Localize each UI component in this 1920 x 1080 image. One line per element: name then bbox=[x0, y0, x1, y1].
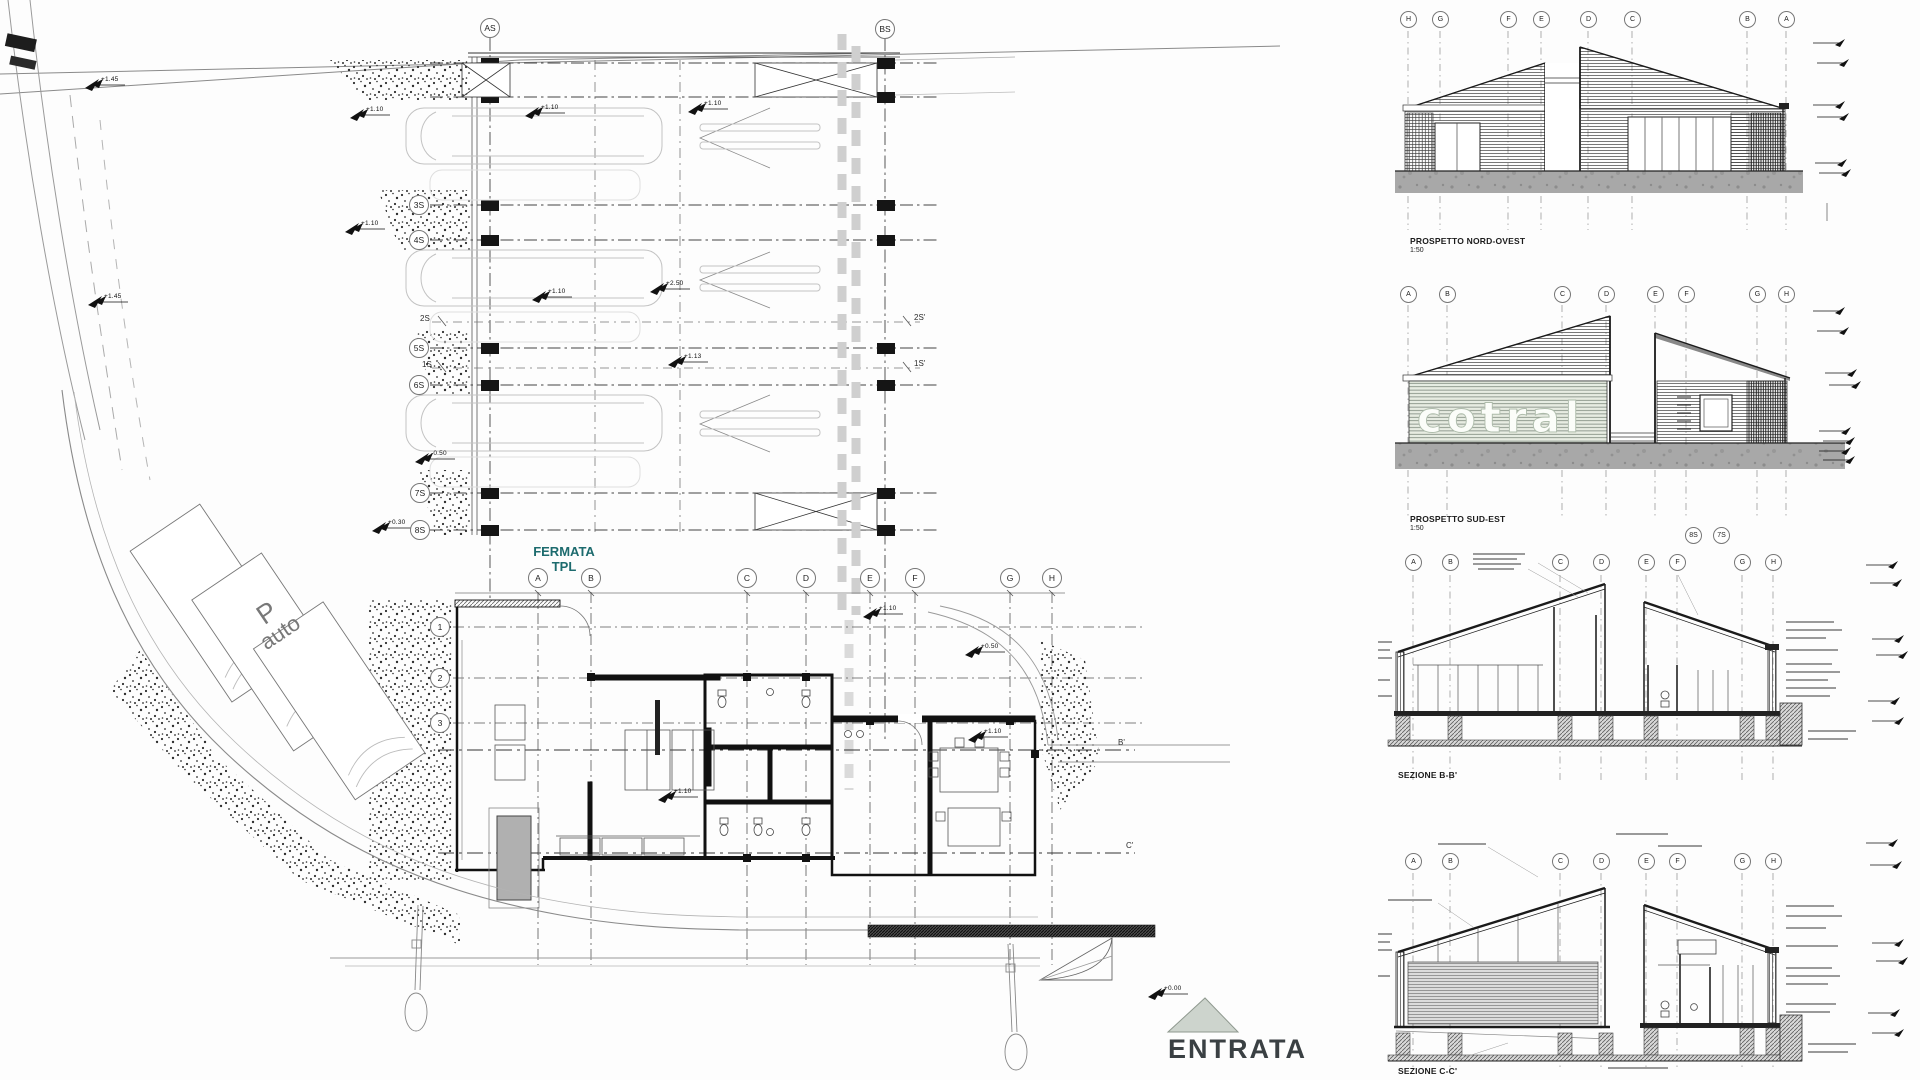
d2-title: PROSPETTO SUD-EST bbox=[1410, 514, 1505, 524]
d3-grid-h: H bbox=[1765, 554, 1782, 571]
spot-elevation: +1.10 bbox=[366, 106, 383, 113]
tick-c-prime: C' bbox=[1126, 841, 1133, 850]
plan-grid-h: H bbox=[1042, 568, 1062, 588]
d4-grid-c: C bbox=[1552, 853, 1569, 870]
tick-2s-prime: 2S' bbox=[914, 313, 925, 322]
grid-bubble-as: AS bbox=[480, 18, 500, 38]
elevation-middle-gap bbox=[1545, 63, 1580, 171]
elevation-right-building bbox=[1655, 333, 1790, 443]
tick-2s: 2S bbox=[420, 314, 430, 323]
elevation-left-block bbox=[1403, 63, 1547, 171]
spot-elevation-flags bbox=[85, 79, 1188, 1000]
spot-elevation: +1.45 bbox=[101, 76, 118, 83]
plan-grid-f: F bbox=[905, 568, 925, 588]
plan-grid-2: 2 bbox=[430, 668, 450, 688]
tick-1s: 1S bbox=[422, 360, 432, 369]
d1-grid-c: C bbox=[1624, 11, 1641, 28]
d4-grid-f: F bbox=[1669, 853, 1686, 870]
elevation-marks bbox=[1866, 561, 1908, 725]
d1-grid-h: H bbox=[1400, 11, 1417, 28]
d4-grid-a: A bbox=[1405, 853, 1422, 870]
d3-title: SEZIONE B-B' bbox=[1398, 770, 1457, 780]
d3-grid-b: B bbox=[1442, 554, 1459, 571]
entrance-label: ENTRATA bbox=[1168, 1034, 1307, 1065]
d2-grid-a: A bbox=[1400, 286, 1417, 303]
cotral-logo: cotral bbox=[1417, 393, 1584, 442]
fermata-line1: FERMATA bbox=[524, 544, 604, 559]
d2-grid-c: C bbox=[1554, 286, 1571, 303]
elevation-marks bbox=[1866, 839, 1908, 1037]
bus-outlines bbox=[406, 108, 820, 487]
d1-grid-g: G bbox=[1432, 11, 1449, 28]
d3-grid-f: F bbox=[1669, 554, 1686, 571]
grid-bubble-4s: 4S bbox=[409, 230, 429, 250]
d1-title: PROSPETTO NORD-OVEST bbox=[1410, 236, 1525, 246]
d3-grid-e: E bbox=[1638, 554, 1655, 571]
d2-grid-h: H bbox=[1778, 286, 1795, 303]
d4-grid-e: E bbox=[1638, 853, 1655, 870]
d4-title: SEZIONE C-C' bbox=[1398, 1066, 1457, 1076]
spot-elevation: +0.30 bbox=[388, 519, 405, 526]
d1-grid-b: B bbox=[1739, 11, 1756, 28]
spot-elevation: +0.00 bbox=[1164, 985, 1181, 992]
spot-elevation: +1.10 bbox=[548, 288, 565, 295]
spot-elevation: +1.45 bbox=[104, 293, 121, 300]
plan-grid-c: C bbox=[737, 568, 757, 588]
d2-scale: 1:50 bbox=[1410, 525, 1424, 532]
tick-1s-prime: 1S' bbox=[914, 359, 925, 368]
ground-bar bbox=[1395, 443, 1845, 469]
spot-elevation: +1.10 bbox=[704, 100, 721, 107]
fermata-line2: TPL bbox=[524, 559, 604, 574]
spot-elevation: +2.50 bbox=[666, 280, 683, 287]
spot-elevation: +1.10 bbox=[984, 728, 1001, 735]
d3-grid-c: C bbox=[1552, 554, 1569, 571]
d2-grid-b: B bbox=[1439, 286, 1456, 303]
d2-bubble-8s: 8S bbox=[1685, 527, 1702, 544]
fermata-tpl-label: FERMATA TPL bbox=[524, 544, 604, 574]
plan-grid-e: E bbox=[860, 568, 880, 588]
d4-grid-b: B bbox=[1442, 853, 1459, 870]
d2-bubble-7s: 7S bbox=[1713, 527, 1730, 544]
d1-grid-a: A bbox=[1778, 11, 1795, 28]
tick-b-prime: B' bbox=[1118, 738, 1125, 747]
grid-bubble-8s: 8S bbox=[410, 520, 430, 540]
spot-elevation: +0.50 bbox=[981, 643, 998, 650]
spot-elevation: +1.13 bbox=[684, 353, 701, 360]
d2-grid-e: E bbox=[1647, 286, 1664, 303]
ground-bar bbox=[1395, 171, 1803, 193]
spot-elevation: +1.10 bbox=[879, 605, 896, 612]
d1-scale: 1:50 bbox=[1410, 247, 1424, 254]
d2-grid-g: G bbox=[1749, 286, 1766, 303]
elevation-left-building: cotral bbox=[1403, 316, 1612, 457]
d4-grid-g: G bbox=[1734, 853, 1751, 870]
site-plan-drawing bbox=[0, 0, 1380, 1080]
d1-grid-e: E bbox=[1533, 11, 1550, 28]
grid-bubble-7s: 7S bbox=[410, 483, 430, 503]
plan-grid-1: 1 bbox=[430, 617, 450, 637]
section-structure bbox=[1388, 888, 1802, 1061]
d4-grid-d: D bbox=[1593, 853, 1610, 870]
spot-elevation: +1.10 bbox=[541, 104, 558, 111]
elevation-right-block bbox=[1580, 47, 1789, 171]
elevation-marks bbox=[1813, 39, 1851, 177]
d1-grid-d: D bbox=[1580, 11, 1597, 28]
spot-elevation: -0.50 bbox=[431, 450, 447, 457]
pedestrian-walkway bbox=[842, 34, 856, 790]
prospetto-nord-ovest-drawing bbox=[1395, 5, 1865, 257]
d2-grid-f: F bbox=[1678, 286, 1695, 303]
d1-grid-f: F bbox=[1500, 11, 1517, 28]
prospetto-sud-est-drawing: cotral bbox=[1395, 283, 1865, 545]
d3-grid-a: A bbox=[1405, 554, 1422, 571]
grid-bubble-5s: 5S bbox=[409, 338, 429, 358]
entrance-triangle bbox=[1168, 998, 1238, 1032]
drawing-sheet: cotral bbox=[0, 0, 1920, 1080]
grid-bubble-3s: 3S bbox=[409, 195, 429, 215]
d4-grid-h: H bbox=[1765, 853, 1782, 870]
elevation-marks bbox=[1813, 307, 1861, 464]
plan-grid-d: D bbox=[796, 568, 816, 588]
grid-bubble-bs: BS bbox=[875, 19, 895, 39]
sezione-bb-drawing bbox=[1378, 545, 1920, 795]
spot-elevation: +1.10 bbox=[361, 220, 378, 227]
d3-grid-g: G bbox=[1734, 554, 1751, 571]
plan-grid-g: G bbox=[1000, 568, 1020, 588]
d2-grid-d: D bbox=[1598, 286, 1615, 303]
d3-grid-d: D bbox=[1593, 554, 1610, 571]
grid-bubble-6s: 6S bbox=[409, 375, 429, 395]
plan-grid-3: 3 bbox=[430, 713, 450, 733]
spot-elevation: +1.10 bbox=[674, 788, 691, 795]
